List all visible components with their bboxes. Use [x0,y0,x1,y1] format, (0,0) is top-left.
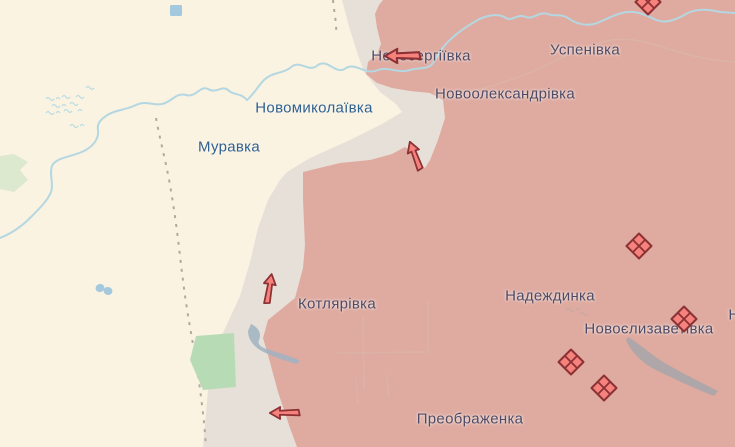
unit-marker-icon[interactable] [669,304,699,334]
unit-marker-icon[interactable] [556,347,586,377]
attack-arrow-icon[interactable] [247,267,291,311]
attack-arrow-icon[interactable] [263,391,307,435]
pond-square [170,5,182,16]
attack-arrow-icon[interactable] [393,134,437,178]
frontline-map-canvas[interactable]: НовосергіївкаУспенівкаНовоолександрівкаН… [0,0,735,447]
unit-marker-icon[interactable] [633,0,663,17]
attack-arrow-icon[interactable] [381,34,425,78]
unit-marker-icon[interactable] [589,373,619,403]
map-terrain [0,0,735,447]
unit-marker-icon[interactable] [624,231,654,261]
